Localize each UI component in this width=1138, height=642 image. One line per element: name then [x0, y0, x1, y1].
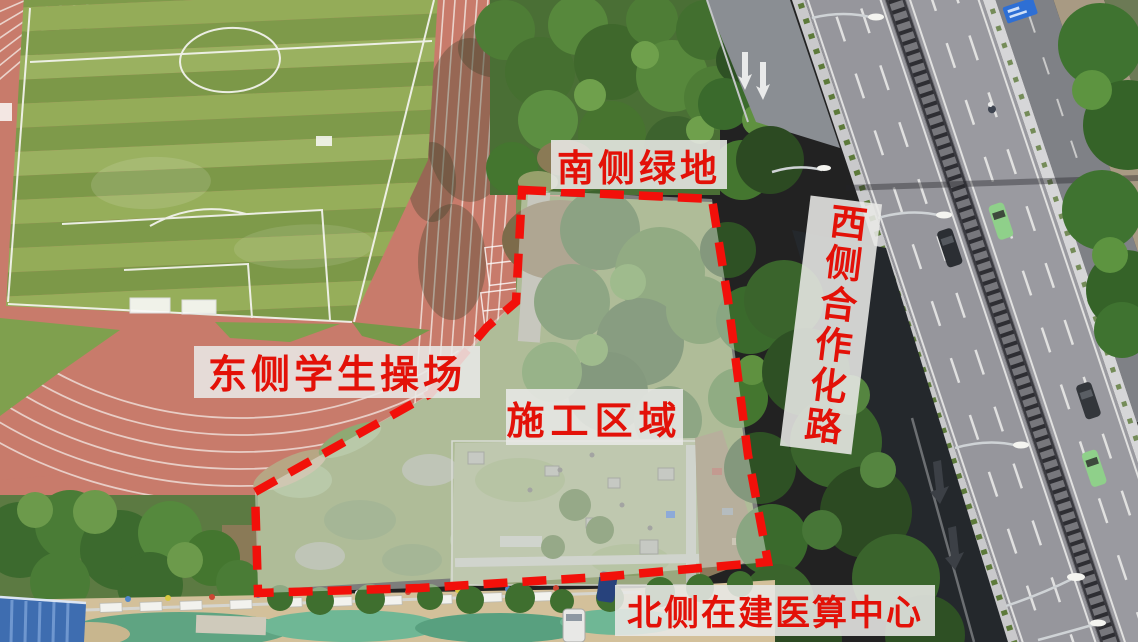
- aerial-photo-canvas: [0, 0, 1138, 642]
- label-south-green-space: 南侧绿地: [551, 140, 727, 189]
- label-east-student-playground: 东侧学生操场: [194, 346, 480, 398]
- label-construction-zone: 施工区域: [506, 389, 683, 445]
- label-north-medical-center: 北侧在建医算中心: [615, 585, 935, 636]
- blue-shed: [0, 597, 86, 642]
- annotated-aerial-photo: 南侧绿地 西侧合作化路 东侧学生操场 施工区域 北侧在建医算中心: [0, 0, 1138, 642]
